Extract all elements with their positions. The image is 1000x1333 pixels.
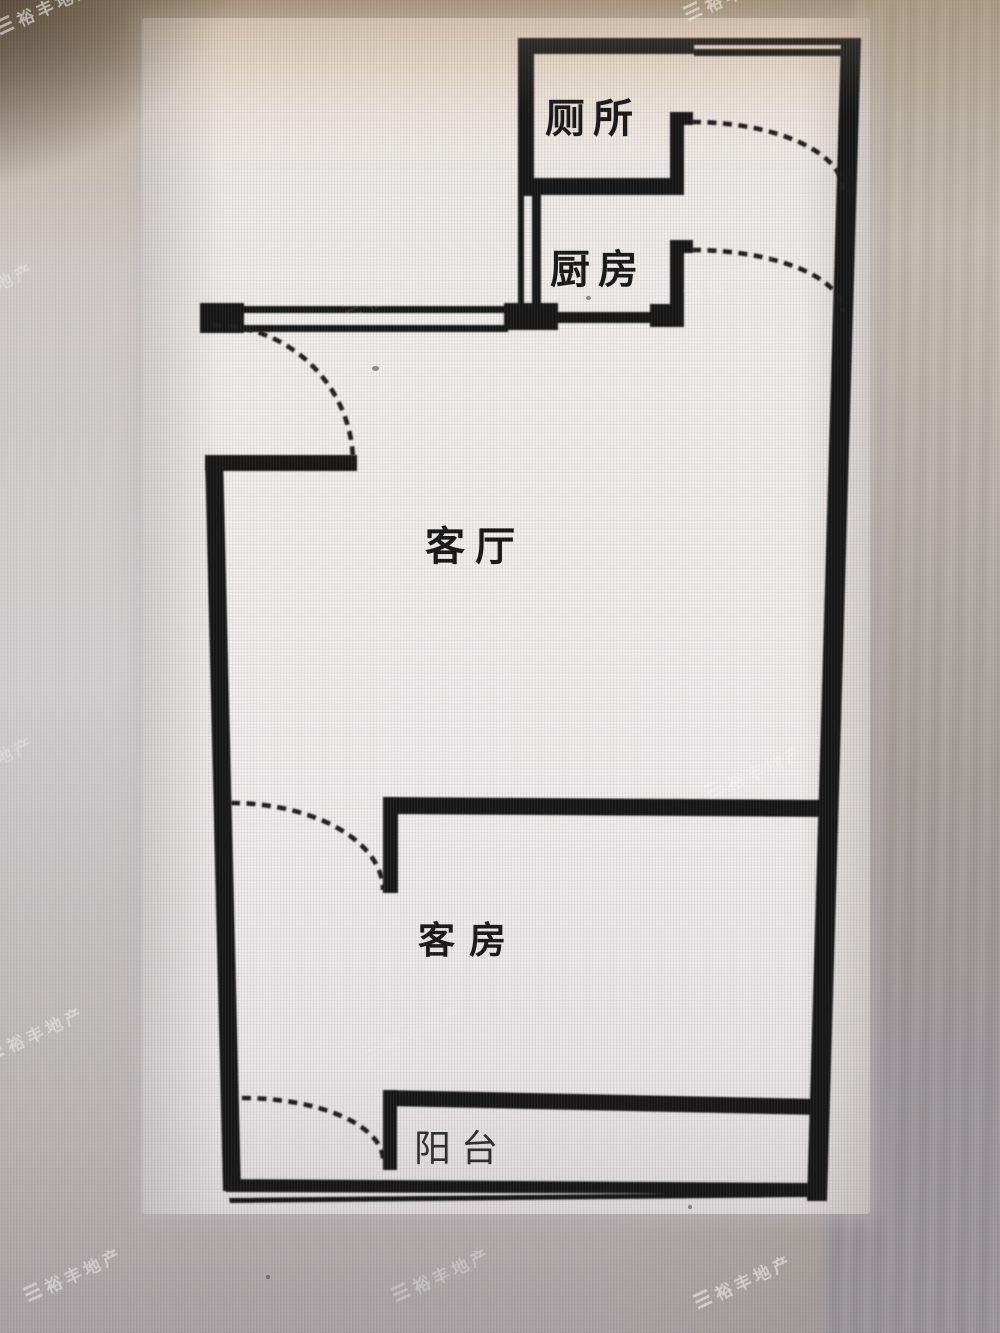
door-arc-entry (213, 325, 353, 463)
wall-kitchen-left-inner (532, 194, 541, 308)
window-toilet-top-outer (694, 38, 844, 45)
floor-plan-photo: 厕所 厨房 客厅 客房 阳台 ☰裕丰地产 ☰裕丰地产 ☰裕丰地产 ☰裕丰地产 ☰… (0, 0, 1000, 1333)
wall-kitchen-bottom-corner (650, 304, 684, 327)
entry-door-leaf (205, 455, 357, 471)
wall-toilet-top (518, 38, 694, 54)
wall-left (205, 455, 241, 1191)
wall-living-guest-divider (383, 797, 833, 817)
door-arc-guest-room (231, 803, 383, 890)
wall-kitchen-door-nub (670, 240, 693, 253)
wall-living-top-left-block (200, 303, 244, 333)
room-label-guest-room: 客房 (418, 910, 520, 964)
window-toilet-top-inner (694, 49, 846, 56)
wall-balcony-bottom (224, 1179, 810, 1194)
room-label-balcony: 阳台 (414, 1118, 508, 1172)
photo-speck (266, 1275, 270, 1279)
guest-door-leaf (383, 797, 398, 893)
door-arcs-group (213, 122, 843, 1160)
photo-speck (372, 366, 379, 371)
window-balcony-rail (229, 1192, 812, 1203)
window-living-top-outer (244, 306, 508, 313)
wall-kitchen-left-outer (518, 194, 524, 308)
room-label-living-room: 客厅 (425, 514, 525, 572)
wall-junction-block (504, 303, 558, 330)
wall-toilet-kitchen-divider (532, 178, 684, 195)
photo-speck (688, 1205, 692, 1209)
wall-toilet-left (518, 38, 534, 196)
door-arc-kitchen (692, 250, 843, 312)
wall-toilet-door-nub (670, 112, 693, 125)
room-label-kitchen: 厨房 (550, 237, 646, 295)
room-label-toilet: 厕所 (545, 86, 641, 144)
door-arc-toilet (692, 122, 843, 190)
door-arc-balcony (242, 1098, 383, 1160)
wall-kitchen-bottom-thin (552, 312, 656, 323)
photo-speck (586, 296, 591, 300)
window-living-top-inner (244, 325, 508, 332)
wall-right (807, 38, 861, 1201)
walls-group (200, 38, 861, 1203)
wall-balcony-top (383, 1090, 820, 1115)
